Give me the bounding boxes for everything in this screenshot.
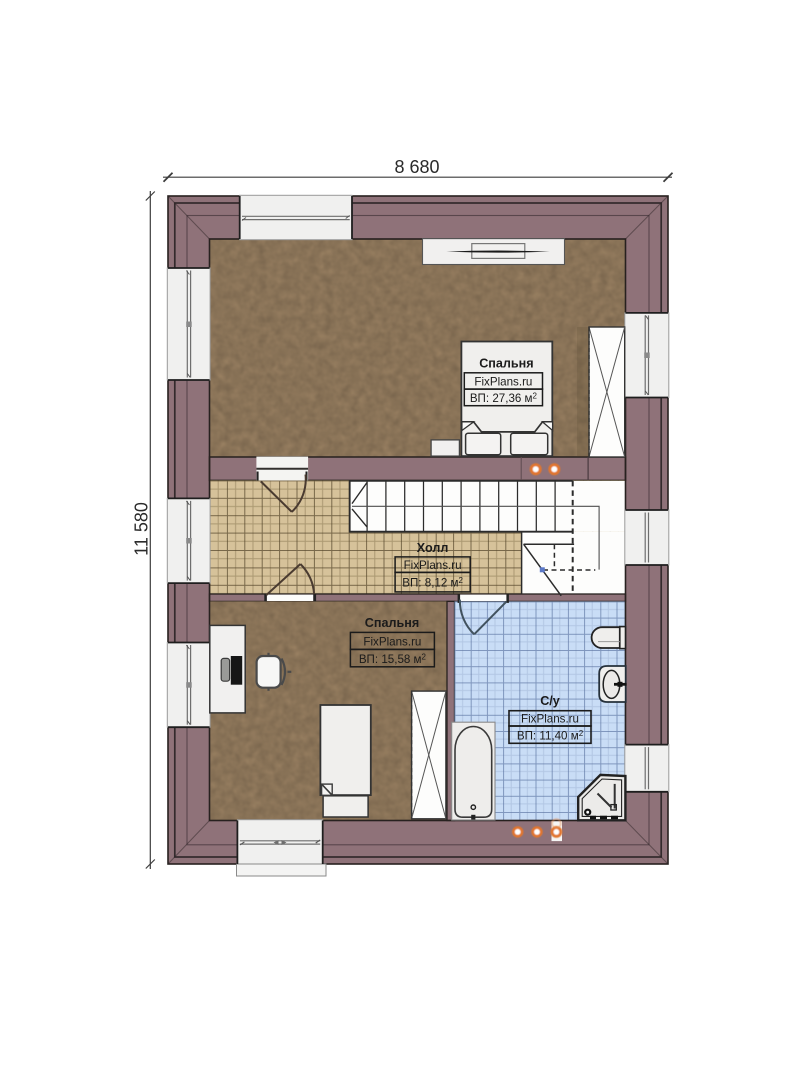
svg-text:FixPlans.ru: FixPlans.ru: [474, 375, 532, 388]
svg-text:ВП: 11,40 м2: ВП: 11,40 м2: [517, 729, 584, 743]
svg-text:ВП: 8,12 м2: ВП: 8,12 м2: [402, 576, 463, 590]
svg-text:FixPlans.ru: FixPlans.ru: [404, 559, 462, 572]
svg-text:8 680: 8 680: [394, 157, 439, 177]
svg-text:ВП: 27,36 м2: ВП: 27,36 м2: [470, 392, 538, 406]
svg-text:ВП: 15,58 м2: ВП: 15,58 м2: [359, 653, 427, 667]
svg-text:Холл: Холл: [417, 541, 449, 555]
svg-text:Спальня: Спальня: [479, 357, 533, 371]
svg-text:FixPlans.ru: FixPlans.ru: [363, 636, 421, 649]
svg-text:FixPlans.ru: FixPlans.ru: [521, 713, 579, 726]
svg-text:С/у: С/у: [540, 694, 560, 708]
svg-text:11 580: 11 580: [132, 502, 152, 556]
svg-text:Спальня: Спальня: [365, 616, 419, 630]
